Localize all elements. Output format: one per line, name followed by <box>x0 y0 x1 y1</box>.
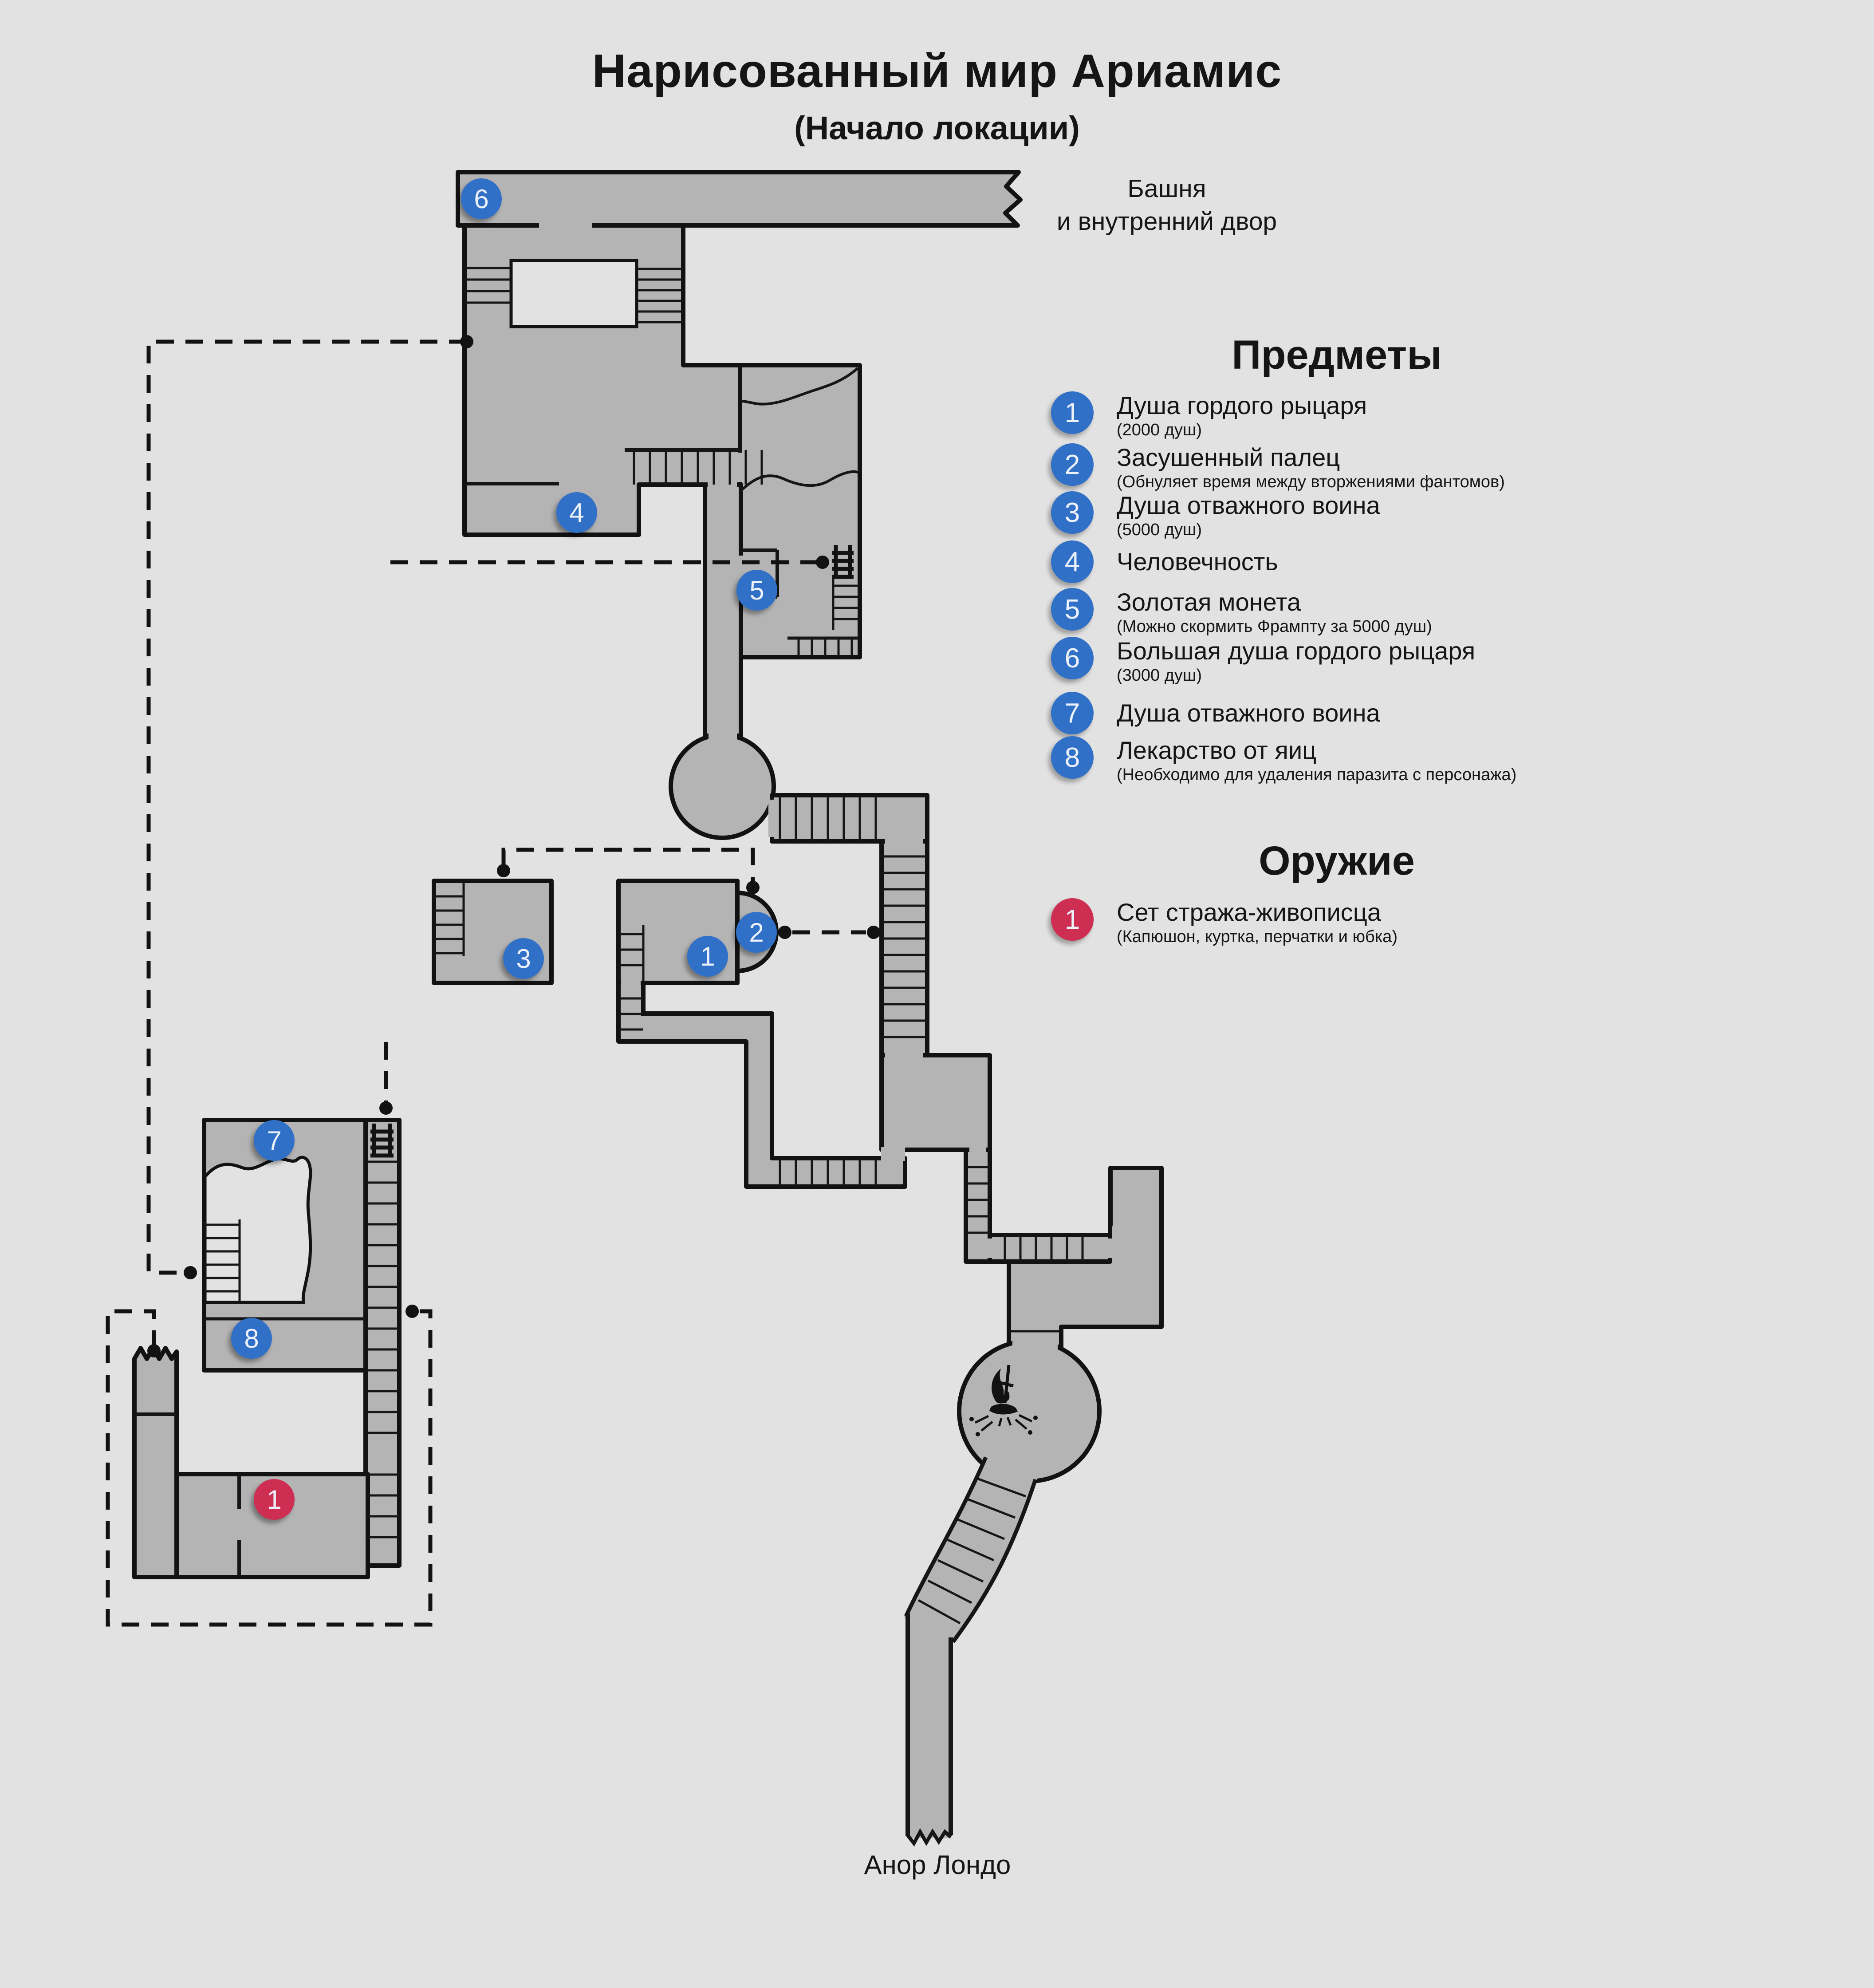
legend-item-6-badge: 6 <box>1051 637 1094 679</box>
legend-item-8-badge: 8 <box>1051 736 1094 779</box>
exit-top-line1: Башня <box>1016 172 1318 205</box>
eroded-void <box>205 1157 311 1302</box>
page-subtitle: (Начало локации) <box>0 109 1874 147</box>
legend-item-2-badge: 2 <box>1051 443 1094 486</box>
legend-item-1: 1 Душа гордого рыцаря(2000 душ) <box>1051 391 1367 440</box>
legend-item-1-label: Душа гордого рыцаря <box>1117 391 1367 420</box>
legend-item-8: 8 Лекарство от яиц(Необходимо для удален… <box>1051 736 1516 785</box>
map-marker-7: 7 <box>254 1120 295 1161</box>
stairwell-void <box>511 260 637 327</box>
legend-item-7-num: 7 <box>1065 698 1080 729</box>
corridor-down <box>705 485 741 736</box>
legend-weapon-1: 1 Сет стража-живописца(Капюшон, куртка, … <box>1051 898 1398 947</box>
legend-item-6: 6 Большая душа гордого рыцаря(3000 душ) <box>1051 637 1475 686</box>
room-1-steps-column <box>618 983 643 1041</box>
legend-item-4: 4 Человечность <box>1051 540 1278 583</box>
legend-item-5-badge: 5 <box>1051 588 1094 631</box>
legend-item-2-note: (Обнуляет время между вторжениями фантом… <box>1117 472 1505 492</box>
top-corridor <box>458 172 1020 225</box>
map-marker-8: 8 <box>231 1318 272 1359</box>
legend-weapon-1-note: (Капюшон, куртка, перчатки и юбка) <box>1117 927 1398 947</box>
legend-item-3-label: Душа отважного воина <box>1117 491 1380 520</box>
map-marker-6: 6 <box>461 178 502 219</box>
map-marker-5: 5 <box>736 570 777 611</box>
page-title: Нарисованный мир Ариамис <box>0 44 1874 98</box>
south-descent <box>904 1455 1037 1838</box>
legend-weapons-heading: Оружие <box>1071 838 1603 884</box>
legend-item-4-badge: 4 <box>1051 540 1094 583</box>
legend-item-3-num: 3 <box>1065 497 1080 529</box>
bonfire-circle <box>959 1341 1099 1481</box>
map-marker-1: 1 <box>687 936 728 977</box>
tall-tower-room <box>740 365 860 657</box>
legend-item-4-label: Человечность <box>1117 548 1278 576</box>
legend-item-2-num: 2 <box>1065 449 1080 481</box>
map-marker-weapon-1: 1 <box>254 1479 295 1520</box>
route-line-room3 <box>504 850 753 883</box>
legend-item-6-label: Большая душа гордого рыцаря <box>1117 637 1475 665</box>
map-drawing <box>0 0 1874 1988</box>
legend-item-2-label: Засушенный палец <box>1117 443 1505 472</box>
zigzag-corridor <box>643 1014 905 1187</box>
legend-item-3-badge: 3 <box>1051 491 1094 534</box>
mid-room <box>882 1055 990 1150</box>
stair-run-east2 <box>990 1235 1110 1262</box>
legend-item-3-note: (5000 душ) <box>1117 520 1380 540</box>
legend-weapon-1-badge: 1 <box>1051 898 1094 941</box>
exit-label-top: Башня и внутренний двор <box>1016 172 1318 238</box>
round-landing <box>671 735 774 838</box>
torn-passage <box>134 1348 177 1577</box>
legend-item-7: 7 Душа отважного воина <box>1051 692 1380 734</box>
painted-world-map-page: Нарисованный мир Ариамис (Начало локации… <box>0 0 1874 1988</box>
legend-item-8-num: 8 <box>1065 742 1080 773</box>
final-corridor-fill <box>908 1613 951 1838</box>
legend-items-heading: Предметы <box>1071 332 1603 379</box>
legend-item-6-num: 6 <box>1065 643 1080 674</box>
legend-item-1-note: (2000 душ) <box>1117 420 1367 440</box>
legend-item-1-badge: 1 <box>1051 391 1094 434</box>
map-marker-4: 4 <box>556 492 597 533</box>
exit-label-bottom: Анор Лондо <box>804 1850 1071 1880</box>
legend-item-8-label: Лекарство от яиц <box>1117 736 1516 765</box>
legend-item-5-note: (Можно скормить Фрампту за 5000 душ) <box>1117 616 1432 637</box>
legend-item-5-label: Золотая монета <box>1117 588 1432 616</box>
legend-item-7-label: Душа отважного воина <box>1117 699 1380 727</box>
map-marker-3: 3 <box>503 938 544 979</box>
legend-item-7-badge: 7 <box>1051 692 1094 734</box>
legend-weapon-1-num: 1 <box>1065 904 1080 935</box>
legend-item-8-note: (Необходимо для удаления паразита с перс… <box>1117 765 1516 785</box>
legend-weapon-1-label: Сет стража-живописца <box>1117 898 1398 927</box>
legend-item-2: 2 Засушенный палец(Обнуляет время между … <box>1051 443 1505 492</box>
legend-item-3: 3 Душа отважного воина(5000 душ) <box>1051 491 1380 540</box>
map-marker-2: 2 <box>736 912 777 953</box>
exit-top-line2: и внутренний двор <box>1016 205 1318 238</box>
legend-item-5-num: 5 <box>1065 594 1080 625</box>
lower-left-stair-column <box>366 1120 399 1566</box>
legend-item-6-note: (3000 душ) <box>1117 665 1475 686</box>
legend-item-4-num: 4 <box>1065 546 1080 578</box>
legend-item-5: 5 Золотая монета(Можно скормить Фрампту … <box>1051 588 1432 637</box>
legend-item-1-num: 1 <box>1065 397 1080 429</box>
